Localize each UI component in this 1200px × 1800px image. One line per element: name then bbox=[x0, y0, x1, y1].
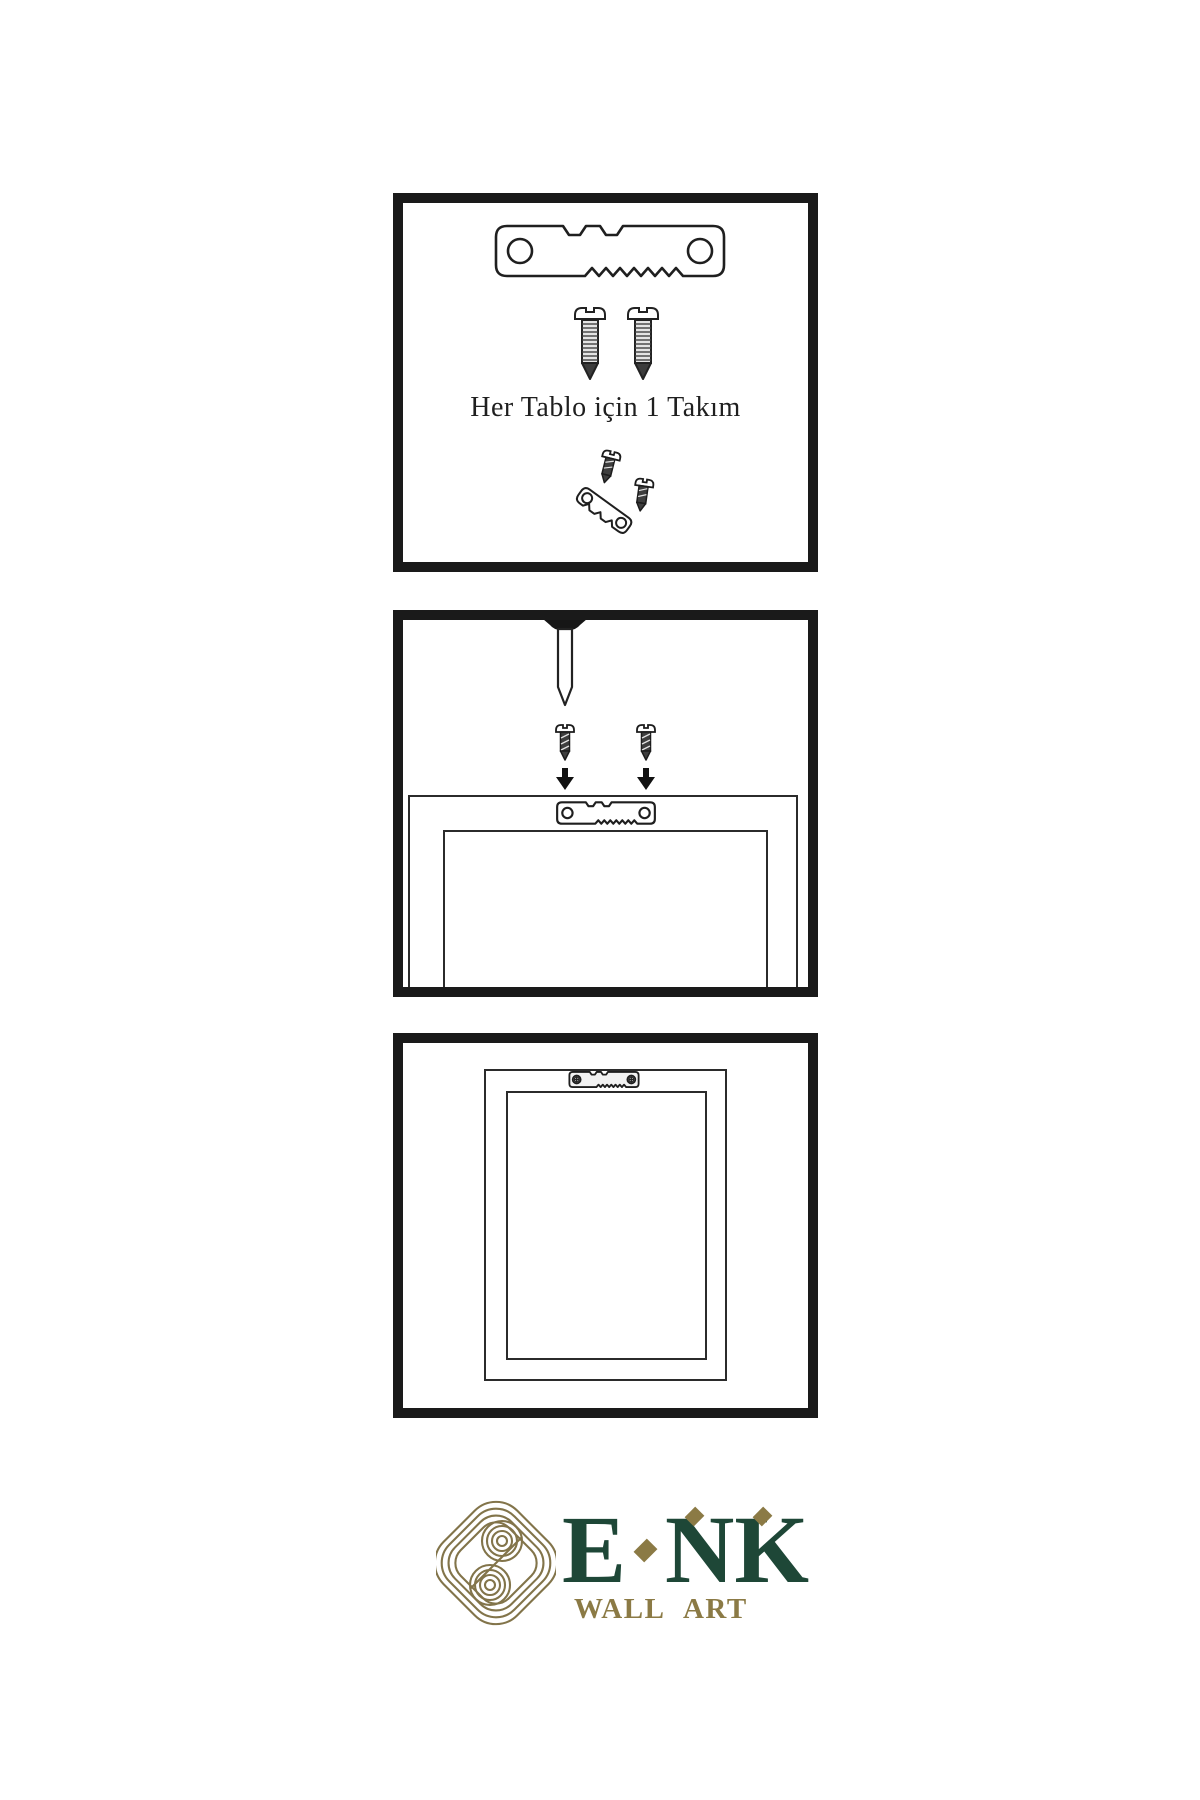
wall-nail-icon bbox=[543, 619, 587, 719]
step-panel-1: Her Tablo için 1 Takım bbox=[393, 193, 818, 572]
installed-hanger-icon bbox=[568, 1071, 640, 1088]
screw-icon bbox=[572, 305, 608, 383]
screw-icon bbox=[554, 723, 576, 763]
brand-subtitle: WALL ART bbox=[574, 1593, 748, 1626]
screw-icon bbox=[635, 723, 657, 763]
step-panel-2 bbox=[393, 610, 818, 997]
diamond-icon bbox=[634, 1539, 658, 1563]
screw-icon bbox=[596, 450, 621, 485]
sawtooth-hanger-icon bbox=[493, 223, 727, 279]
screw-icon bbox=[632, 478, 654, 512]
screw-icon bbox=[625, 305, 661, 383]
brand-letters-nk: NK bbox=[665, 1496, 809, 1603]
hanging-frame-inner-outline bbox=[506, 1091, 707, 1360]
sawtooth-hanger-icon bbox=[555, 801, 657, 825]
enk-knot-logo-icon bbox=[436, 1497, 556, 1629]
screw-and-hanger-kit-icon bbox=[573, 448, 663, 550]
step-panel-3 bbox=[393, 1033, 818, 1418]
frame-back-inner-outline bbox=[443, 830, 768, 997]
down-arrow-icon bbox=[637, 768, 655, 790]
kit-caption: Her Tablo için 1 Takım bbox=[403, 392, 808, 424]
instruction-sheet: { "canvas": { "width": 1200, "height": 1… bbox=[0, 0, 1200, 1800]
down-arrow-icon bbox=[556, 768, 574, 790]
brand-letter-e: E bbox=[562, 1496, 626, 1603]
